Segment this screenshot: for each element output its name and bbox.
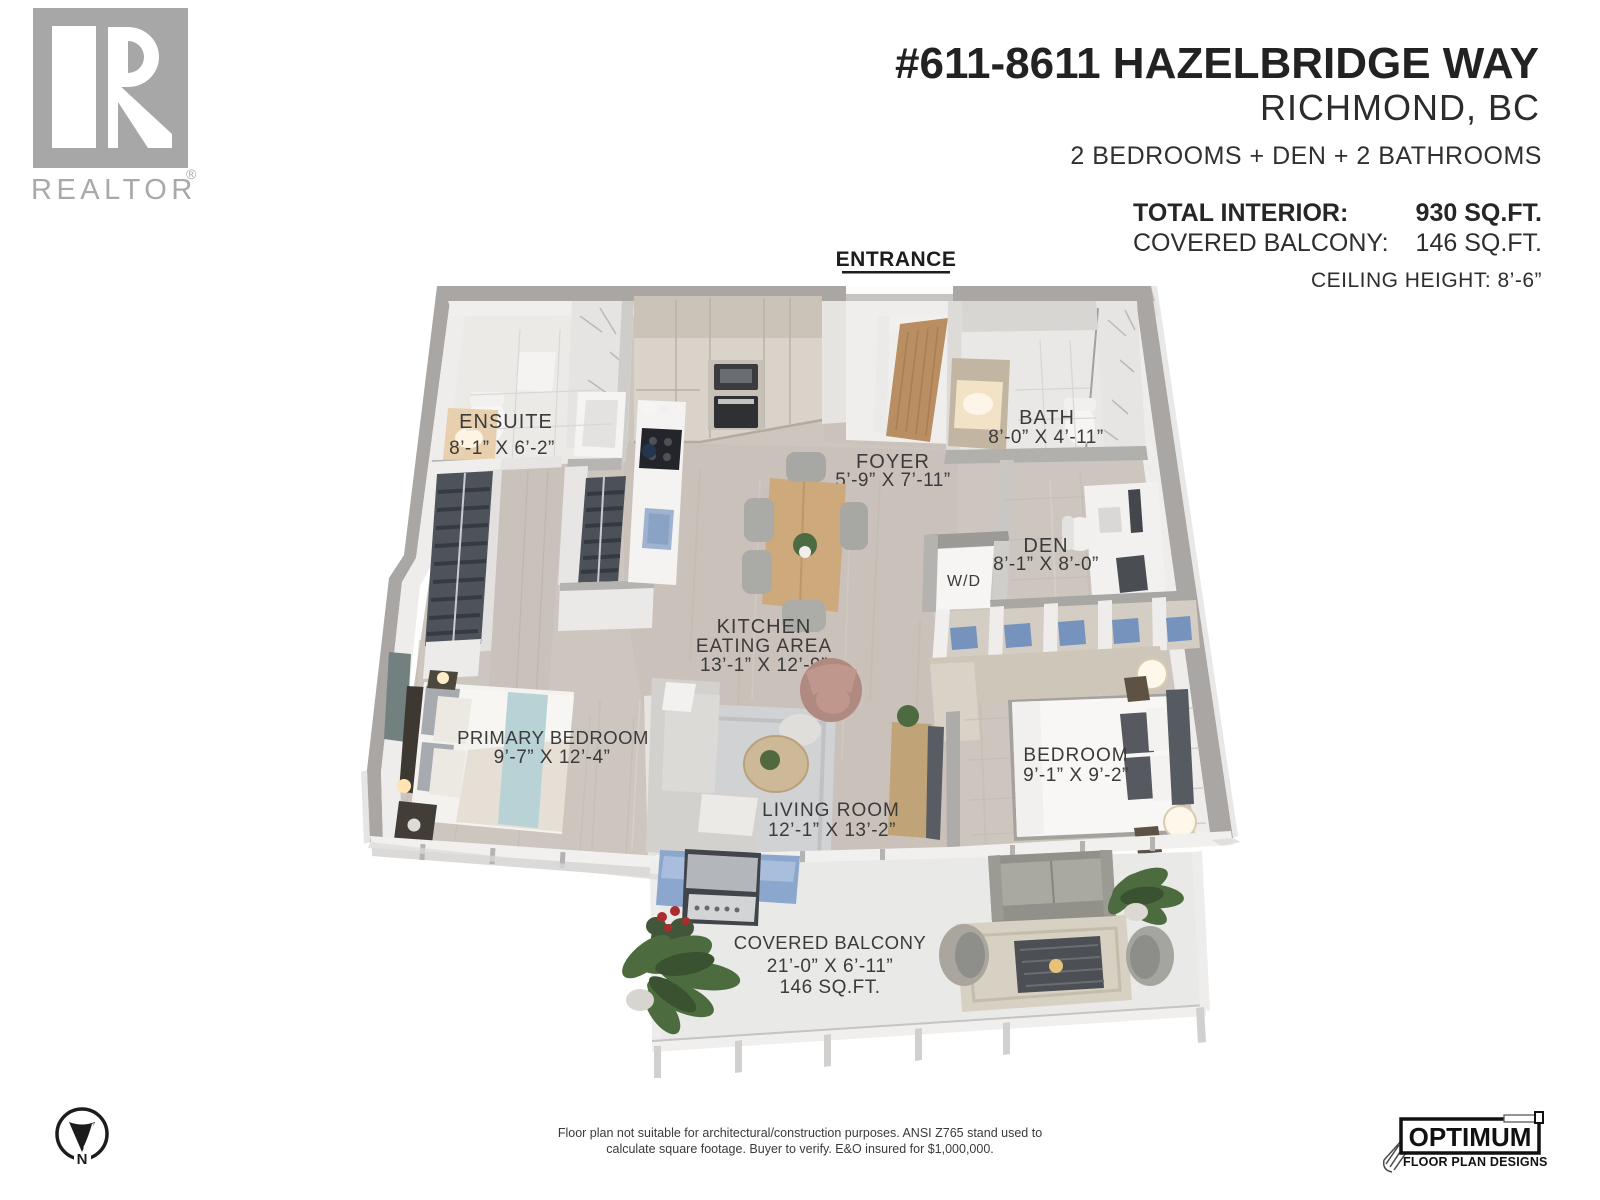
svg-text:Floor plan not suitable for ar: Floor plan not suitable for architectura… (558, 1126, 1042, 1140)
svg-text:ENSUITE: ENSUITE (459, 411, 553, 433)
svg-text:146 SQ.FT.: 146 SQ.FT. (779, 977, 880, 998)
svg-text:FLOOR PLAN DESIGNS: FLOOR PLAN DESIGNS (1403, 1155, 1548, 1169)
svg-text:PRIMARY BEDROOM: PRIMARY BEDROOM (457, 727, 649, 748)
svg-text:8’-0” X 4’-11”: 8’-0” X 4’-11” (988, 427, 1103, 448)
svg-text:930 SQ.FT.: 930 SQ.FT. (1416, 199, 1542, 227)
svg-text:9’-1” X 9’-2”: 9’-1” X 9’-2” (1023, 765, 1129, 786)
svg-text:BEDROOM: BEDROOM (1023, 745, 1128, 766)
svg-text:CEILING HEIGHT: 8’-6”: CEILING HEIGHT: 8’-6” (1311, 269, 1542, 292)
svg-text:calculate square footage. Buye: calculate square footage. Buyer to verif… (606, 1142, 994, 1156)
svg-text:12’-1” X 13’-2”: 12’-1” X 13’-2” (768, 820, 896, 841)
svg-text:REALTOR: REALTOR (31, 174, 197, 206)
svg-text:5’-9” X 7’-11”: 5’-9” X 7’-11” (835, 470, 950, 491)
svg-text:2 BEDROOMS + DEN + 2 BATHROOMS: 2 BEDROOMS + DEN + 2 BATHROOMS (1070, 142, 1542, 170)
svg-text:RICHMOND, BC: RICHMOND, BC (1260, 87, 1540, 128)
svg-text:21’-0” X 6’-11”: 21’-0” X 6’-11” (767, 956, 893, 977)
svg-text:COVERED BALCONY:: COVERED BALCONY: (1133, 229, 1389, 257)
svg-text:ENTRANCE: ENTRANCE (836, 248, 957, 271)
svg-text:BATH: BATH (1019, 407, 1075, 429)
svg-text:9’-7” X 12’-4”: 9’-7” X 12’-4” (494, 747, 611, 768)
svg-text:OPTIMUM: OPTIMUM (1409, 1122, 1532, 1152)
svg-text:N: N (77, 1151, 88, 1168)
svg-text:8’-1” X 6’-2”: 8’-1” X 6’-2” (449, 438, 555, 459)
svg-text:COVERED BALCONY: COVERED BALCONY (734, 932, 927, 953)
svg-text:KITCHEN: KITCHEN (717, 616, 812, 638)
svg-text:LIVING ROOM: LIVING ROOM (762, 800, 900, 821)
svg-text:146 SQ.FT.: 146 SQ.FT. (1416, 229, 1542, 257)
svg-text:TOTAL INTERIOR:: TOTAL INTERIOR: (1133, 199, 1348, 227)
svg-text:W/D: W/D (947, 573, 981, 590)
svg-text:#611-8611 HAZELBRIDGE WAY: #611-8611 HAZELBRIDGE WAY (895, 39, 1539, 88)
svg-text:®: ® (186, 166, 197, 182)
svg-text:EATING AREA: EATING AREA (696, 636, 832, 657)
svg-text:8’-1” X 8’-0”: 8’-1” X 8’-0” (993, 554, 1099, 575)
